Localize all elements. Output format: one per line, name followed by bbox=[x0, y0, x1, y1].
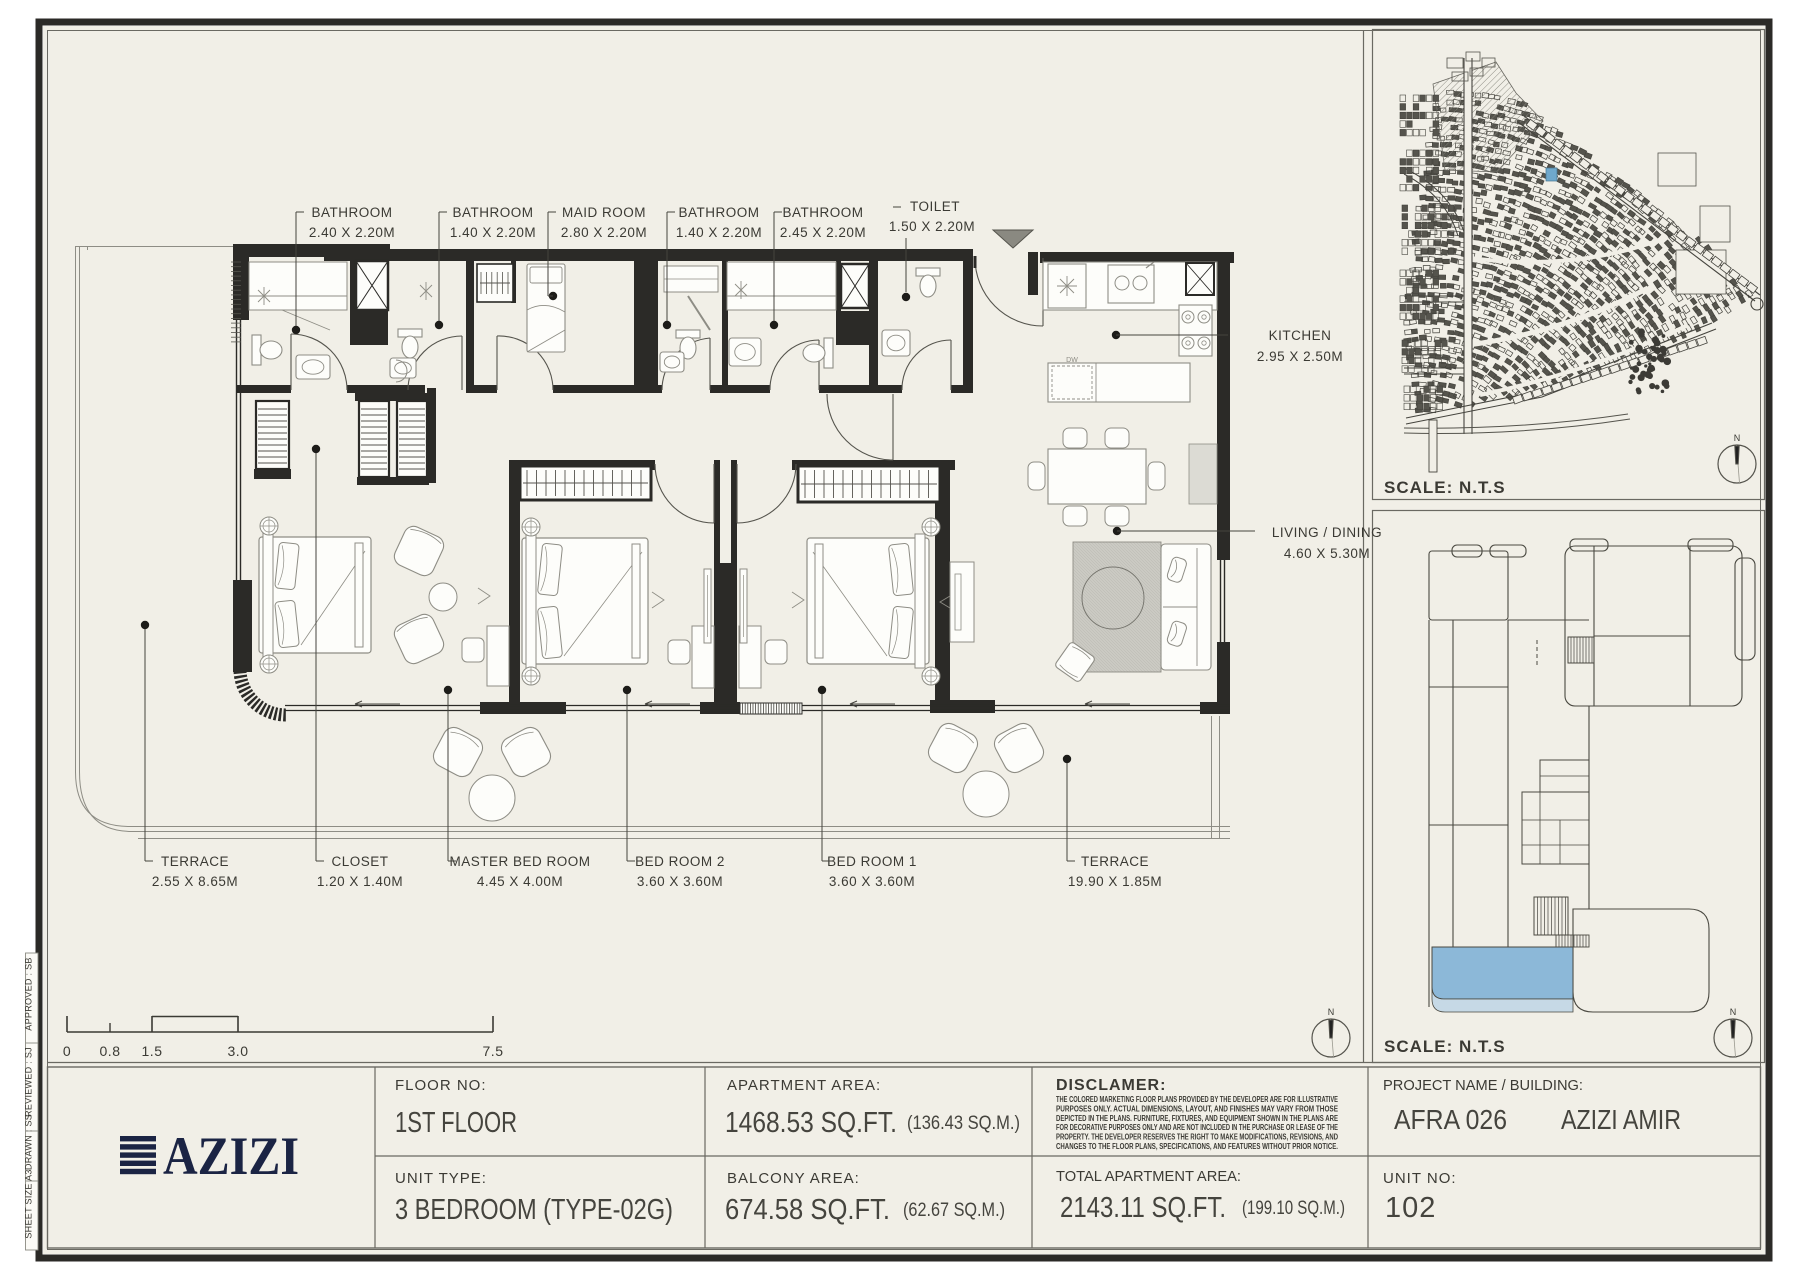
svg-text:UNIT TYPE:: UNIT TYPE: bbox=[395, 1170, 487, 1187]
svg-text:2.55 X 8.65M: 2.55 X 8.65M bbox=[152, 874, 238, 889]
svg-text:102: 102 bbox=[1385, 1192, 1436, 1224]
svg-text:N: N bbox=[1734, 433, 1741, 443]
svg-text:4.45 X 4.00M: 4.45 X 4.00M bbox=[477, 874, 563, 889]
svg-text:LIVING / DINING: LIVING / DINING bbox=[1272, 525, 1382, 540]
svg-text:CLOSET: CLOSET bbox=[331, 854, 388, 869]
svg-text:TERRACE: TERRACE bbox=[161, 854, 229, 869]
svg-text:FLOOR NO:: FLOOR NO: bbox=[395, 1077, 487, 1094]
svg-text:AFRA 026: AFRA 026 bbox=[1394, 1104, 1507, 1135]
svg-text:1ST FLOOR: 1ST FLOOR bbox=[395, 1107, 517, 1139]
svg-text:APPROVED : SB: APPROVED : SB bbox=[24, 957, 34, 1030]
svg-text:0.8: 0.8 bbox=[100, 1043, 121, 1059]
svg-text:DW: DW bbox=[1066, 357, 1078, 364]
svg-text:1.20 X 1.40M: 1.20 X 1.40M bbox=[317, 874, 403, 889]
svg-text:674.58 SQ.FT.: 674.58 SQ.FT. bbox=[725, 1194, 890, 1226]
svg-text:TOILET: TOILET bbox=[910, 199, 960, 214]
svg-text:DEPICTED IN THE PLANS. FURNITU: DEPICTED IN THE PLANS. FURNITURE, FIXTUR… bbox=[1056, 1114, 1338, 1123]
svg-text:3.0: 3.0 bbox=[228, 1043, 249, 1059]
svg-text:19.90 X 1.85M: 19.90 X 1.85M bbox=[1068, 874, 1162, 889]
svg-text:BED ROOM 2: BED ROOM 2 bbox=[635, 854, 725, 869]
svg-text:BATHROOM: BATHROOM bbox=[312, 205, 393, 220]
svg-text:SHEET SIZE A3: SHEET SIZE A3 bbox=[24, 1169, 34, 1238]
svg-text:(136.43 SQ.M.): (136.43 SQ.M.) bbox=[907, 1113, 1020, 1134]
svg-text:THE COLORED MARKETING FLOOR PL: THE COLORED MARKETING FLOOR PLANS PROVID… bbox=[1056, 1095, 1338, 1104]
svg-text:(199.10 SQ.M.): (199.10 SQ.M.) bbox=[1242, 1198, 1345, 1219]
svg-text:2.45 X 2.20M: 2.45 X 2.20M bbox=[780, 225, 866, 240]
svg-text:2143.11 SQ.FT.: 2143.11 SQ.FT. bbox=[1060, 1192, 1226, 1224]
svg-text:MASTER BED ROOM: MASTER BED ROOM bbox=[449, 854, 590, 869]
svg-text:FOR DECORATIVE PURPOSES ONLY A: FOR DECORATIVE PURPOSES ONLY AND ARE NOT… bbox=[1056, 1123, 1338, 1132]
svg-text:(62.67 SQ.M.): (62.67 SQ.M.) bbox=[903, 1200, 1005, 1221]
svg-text:2.80 X 2.20M: 2.80 X 2.20M bbox=[561, 225, 647, 240]
svg-text:PROPERTY. THE DEVELOPER RESERV: PROPERTY. THE DEVELOPER RESERVES THE RIG… bbox=[1056, 1133, 1338, 1142]
svg-text:KITCHEN: KITCHEN bbox=[1269, 328, 1332, 343]
svg-text:3.60 X 3.60M: 3.60 X 3.60M bbox=[829, 874, 915, 889]
svg-text:TOTAL APARTMENT AREA:: TOTAL APARTMENT AREA: bbox=[1056, 1168, 1241, 1185]
svg-text:BATHROOM: BATHROOM bbox=[783, 205, 864, 220]
svg-text:4.60 X 5.30M: 4.60 X 5.30M bbox=[1284, 546, 1370, 561]
svg-text:1.50 X 2.20M: 1.50 X 2.20M bbox=[889, 219, 975, 234]
svg-text:SCALE: N.T.S: SCALE: N.T.S bbox=[1384, 1037, 1506, 1056]
svg-text:BATHROOM: BATHROOM bbox=[453, 205, 534, 220]
svg-text:BALCONY AREA:: BALCONY AREA: bbox=[727, 1170, 860, 1187]
svg-text:3 BEDROOM (TYPE-02G): 3 BEDROOM (TYPE-02G) bbox=[395, 1194, 673, 1226]
svg-text:AZIZI AMIR: AZIZI AMIR bbox=[1561, 1104, 1681, 1135]
svg-text:CHANGES TO THE FLOOR PLANS, SP: CHANGES TO THE FLOOR PLANS, SPECIFICATIO… bbox=[1056, 1142, 1338, 1151]
svg-text:PURPOSES ONLY. ACTUAL DIMENSIO: PURPOSES ONLY. ACTUAL DIMENSIONS, LAYOUT… bbox=[1056, 1104, 1339, 1113]
svg-text:APARTMENT AREA:: APARTMENT AREA: bbox=[727, 1077, 881, 1094]
svg-text:DISCLAMER:: DISCLAMER: bbox=[1056, 1077, 1166, 1094]
svg-text:1.5: 1.5 bbox=[142, 1043, 163, 1059]
svg-text:7.5: 7.5 bbox=[483, 1043, 504, 1059]
svg-text:PROJECT NAME / BUILDING:: PROJECT NAME / BUILDING: bbox=[1383, 1077, 1583, 1094]
svg-text:1.40 X 2.20M: 1.40 X 2.20M bbox=[450, 225, 536, 240]
svg-text:2.95 X 2.50M: 2.95 X 2.50M bbox=[1257, 349, 1343, 364]
svg-text:UNIT NO:: UNIT NO: bbox=[1383, 1170, 1457, 1187]
svg-text:1468.53 SQ.FT.: 1468.53 SQ.FT. bbox=[725, 1107, 897, 1139]
svg-text:BATHROOM: BATHROOM bbox=[679, 205, 760, 220]
svg-text:MAID ROOM: MAID ROOM bbox=[562, 205, 646, 220]
svg-text:AZIZI: AZIZI bbox=[163, 1126, 299, 1186]
svg-text:DRAWN : SS: DRAWN : SS bbox=[24, 1114, 34, 1170]
svg-text:0: 0 bbox=[63, 1043, 71, 1059]
svg-text:N: N bbox=[1730, 1007, 1737, 1017]
svg-text:REVIEWED : SJ: REVIEWED : SJ bbox=[24, 1047, 34, 1117]
svg-text:BED ROOM 1: BED ROOM 1 bbox=[827, 854, 917, 869]
svg-text:2.40 X 2.20M: 2.40 X 2.20M bbox=[309, 225, 395, 240]
svg-text:SCALE: N.T.S: SCALE: N.T.S bbox=[1384, 478, 1506, 497]
svg-text:1.40 X 2.20M: 1.40 X 2.20M bbox=[676, 225, 762, 240]
svg-text:TERRACE: TERRACE bbox=[1081, 854, 1149, 869]
svg-text:N: N bbox=[1328, 1007, 1335, 1017]
svg-text:3.60 X 3.60M: 3.60 X 3.60M bbox=[637, 874, 723, 889]
